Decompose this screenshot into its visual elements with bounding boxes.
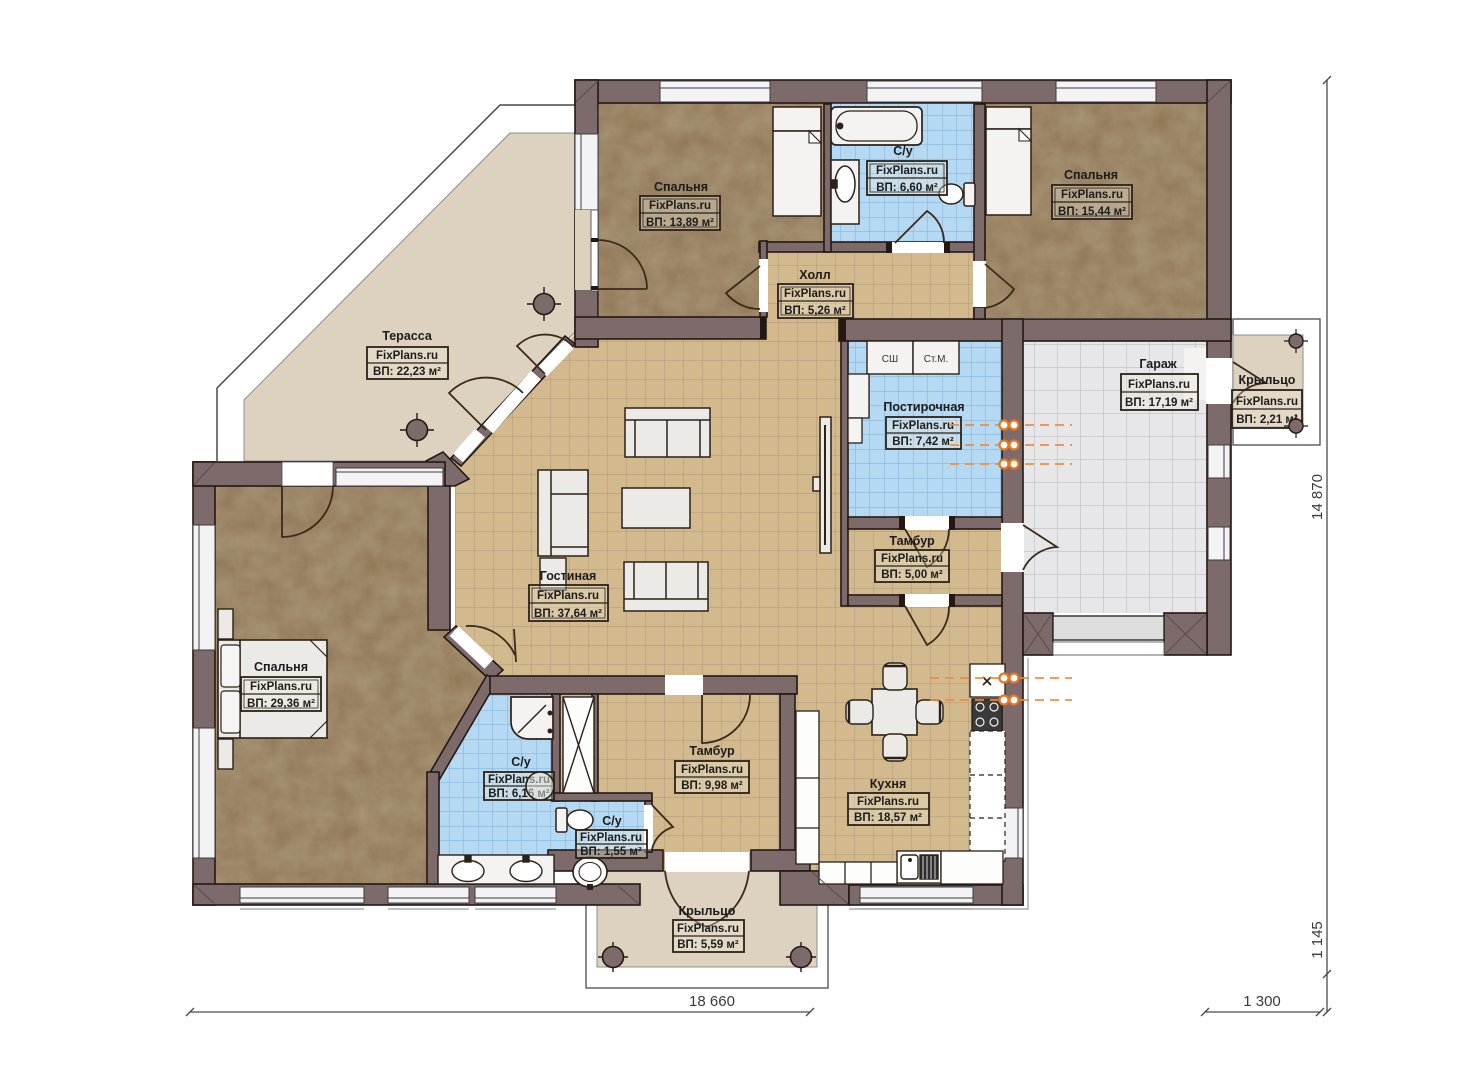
svg-text:FixPlans.ru: FixPlans.ru: [537, 590, 599, 602]
svg-text:FixPlans.ru: FixPlans.ru: [376, 350, 438, 362]
svg-text:ВП: 29,36 м²: ВП: 29,36 м²: [247, 698, 315, 710]
svg-text:СШ: СШ: [882, 354, 898, 365]
svg-text:FixPlans.ru: FixPlans.ru: [681, 764, 743, 776]
svg-text:Крыльцо: Крыльцо: [1239, 373, 1296, 387]
svg-text:Терасса: Терасса: [382, 329, 433, 343]
svg-text:Спальня: Спальня: [254, 660, 308, 674]
svg-text:Постирочная: Постирочная: [883, 400, 964, 414]
svg-text:Ст.М.: Ст.М.: [924, 354, 949, 365]
svg-text:FixPlans.ru: FixPlans.ru: [649, 200, 711, 212]
svg-text:FixPlans.ru: FixPlans.ru: [250, 681, 312, 693]
svg-text:Тамбур: Тамбур: [889, 534, 935, 548]
svg-text:ВП: 7,42 м²: ВП: 7,42 м²: [892, 436, 954, 448]
svg-text:FixPlans.ru: FixPlans.ru: [881, 553, 943, 565]
svg-text:FixPlans.ru: FixPlans.ru: [784, 288, 846, 300]
svg-text:FixPlans.ru: FixPlans.ru: [580, 832, 642, 844]
svg-text:FixPlans.ru: FixPlans.ru: [1236, 396, 1298, 408]
svg-text:ВП: 13,89 м²: ВП: 13,89 м²: [646, 217, 714, 229]
svg-text:ВП: 9,98 м²: ВП: 9,98 м²: [681, 780, 743, 792]
svg-text:ВП: 6,60 м²: ВП: 6,60 м²: [876, 182, 938, 194]
svg-text:Спальня: Спальня: [654, 180, 708, 194]
svg-text:Гостиная: Гостиная: [540, 569, 597, 583]
svg-text:ВП: 5,26 м²: ВП: 5,26 м²: [784, 305, 846, 317]
svg-text:18 660: 18 660: [689, 993, 735, 1010]
svg-text:1 145: 1 145: [1309, 921, 1326, 959]
svg-text:1 300: 1 300: [1243, 993, 1281, 1010]
svg-text:ВП: 18,57 м²: ВП: 18,57 м²: [854, 812, 922, 824]
svg-text:FixPlans.ru: FixPlans.ru: [892, 420, 954, 432]
svg-text:FixPlans.ru: FixPlans.ru: [677, 923, 739, 935]
svg-text:FixPlans.ru: FixPlans.ru: [857, 796, 919, 808]
svg-text:С/у: С/у: [893, 144, 913, 158]
svg-text:FixPlans.ru: FixPlans.ru: [1061, 189, 1123, 201]
svg-text:FixPlans.ru: FixPlans.ru: [876, 165, 938, 177]
svg-text:С/у: С/у: [511, 755, 531, 769]
svg-text:FixPlans.ru: FixPlans.ru: [1128, 379, 1190, 391]
svg-text:ВП: 15,44 м²: ВП: 15,44 м²: [1058, 206, 1126, 218]
svg-text:ВП: 37,64 м²: ВП: 37,64 м²: [534, 608, 602, 620]
svg-text:ВП: 5,00 м²: ВП: 5,00 м²: [881, 569, 943, 581]
svg-text:ВП: 1,55 м²: ВП: 1,55 м²: [580, 846, 642, 858]
svg-text:Гараж: Гараж: [1139, 357, 1176, 371]
svg-text:Кухня: Кухня: [870, 777, 907, 791]
svg-text:С/у: С/у: [602, 814, 622, 828]
svg-text:ВП: 5,59 м²: ВП: 5,59 м²: [677, 939, 739, 951]
svg-text:ВП: 22,23 м²: ВП: 22,23 м²: [373, 366, 441, 378]
svg-text:Холл: Холл: [799, 268, 830, 282]
svg-text:14 870: 14 870: [1309, 474, 1326, 520]
svg-text:Крыльцо: Крыльцо: [679, 904, 736, 918]
svg-text:ВП: 17,19 м²: ВП: 17,19 м²: [1125, 397, 1193, 409]
svg-text:Спальня: Спальня: [1064, 168, 1118, 182]
svg-text:Тамбур: Тамбур: [689, 744, 735, 758]
